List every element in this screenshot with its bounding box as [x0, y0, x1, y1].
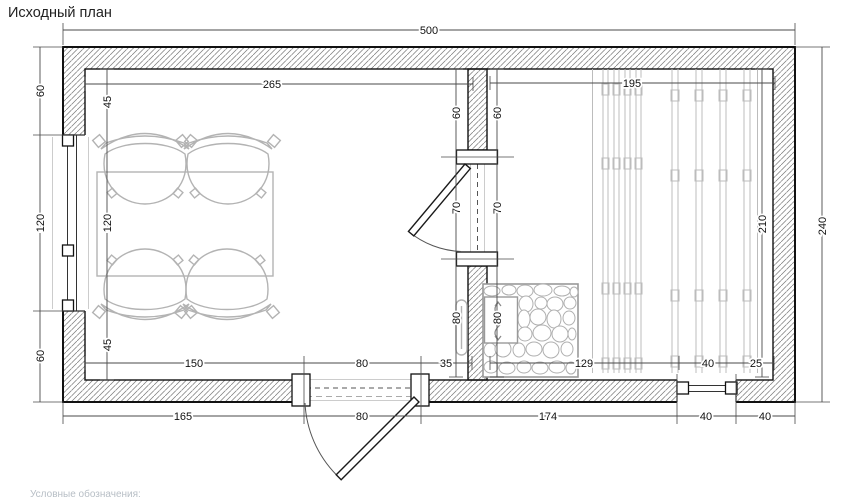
dim-top-total: 500: [420, 25, 438, 37]
exterior-walls: [63, 47, 795, 402]
dim-bottom-outer-4: 40: [700, 411, 712, 423]
dim-right-inner: 210: [757, 215, 769, 233]
door-leaf-partition: [408, 164, 470, 236]
dim-partition-left-top: 60: [451, 107, 463, 119]
chair-top-left: [93, 134, 198, 205]
dim-left-outer-top: 60: [35, 85, 47, 97]
dim-left-outer-bottom: 60: [35, 350, 47, 362]
sauna-planks: [593, 69, 758, 373]
dim-bottom-inner-left-2: 80: [356, 358, 368, 370]
dim-bottom-outer-1: 165: [174, 411, 192, 423]
chair-bottom-left: [93, 249, 198, 320]
window-bottom: [677, 379, 737, 403]
dim-bottom-inner-right-1: 129: [575, 358, 593, 370]
dim-partition-left-bottom: 80: [451, 312, 463, 324]
dim-right-room-top: 195: [623, 78, 641, 90]
dim-left-inner-top: 45: [102, 96, 114, 108]
chair-bottom-right: [175, 249, 280, 320]
floor-plan-page: 500 60 120 60 45 120 45 265 195 60 70 80…: [0, 0, 844, 501]
dim-bottom-outer-3: 174: [539, 411, 557, 423]
dim-partition-right-top: 60: [492, 107, 504, 119]
dining-table: [97, 172, 273, 276]
dim-partition-left-door: 70: [451, 202, 463, 214]
dim-bottom-inner-left-1: 150: [185, 358, 203, 370]
dim-bottom-inner-right-2: 40: [702, 358, 714, 370]
door-entrance: [292, 374, 429, 480]
plank-connectors: [602, 84, 751, 369]
dim-left-inner-window: 120: [102, 214, 114, 232]
window-left: [53, 135, 89, 311]
plank-boards: [603, 69, 750, 373]
radiator: [456, 300, 467, 355]
chair-top-right: [176, 134, 281, 205]
dim-right-outer: 240: [817, 217, 829, 235]
floor-plan-drawing: 500 60 120 60 45 120 45 265 195 60 70 80…: [0, 0, 844, 501]
dim-left-inner-bottom: 45: [102, 339, 114, 351]
dim-bottom-inner-right-3: 25: [750, 358, 762, 370]
dim-left-room-top: 265: [263, 79, 281, 91]
dim-partition-right-door: 70: [492, 202, 504, 214]
dim-bottom-outer-5: 40: [759, 411, 771, 423]
page-title: Исходный план: [8, 5, 112, 21]
dim-bottom-outer-2: 80: [356, 411, 368, 423]
dim-left-outer-window: 120: [35, 214, 47, 232]
dim-partition-right-bottom: 80: [492, 312, 504, 324]
legend-caption: Условные обозначения:: [30, 489, 141, 500]
door-leaf-entrance: [336, 397, 419, 480]
dim-bottom-inner-left-3: 35: [440, 358, 452, 370]
